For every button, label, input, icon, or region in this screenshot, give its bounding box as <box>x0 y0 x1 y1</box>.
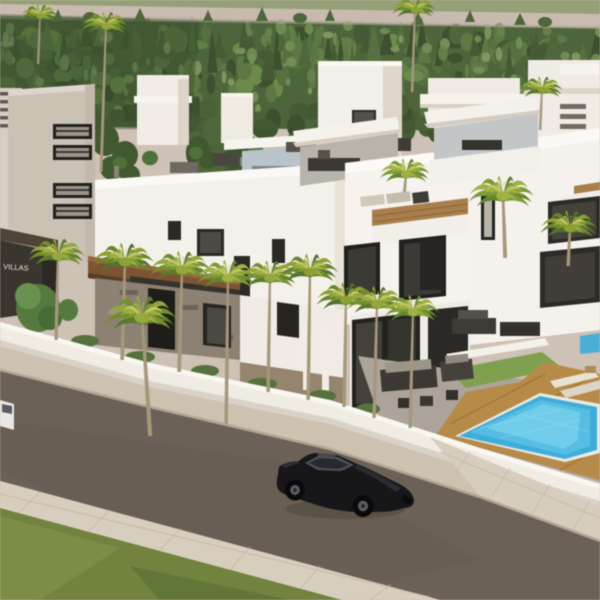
svg-text:VILLAS: VILLAS <box>3 262 29 273</box>
